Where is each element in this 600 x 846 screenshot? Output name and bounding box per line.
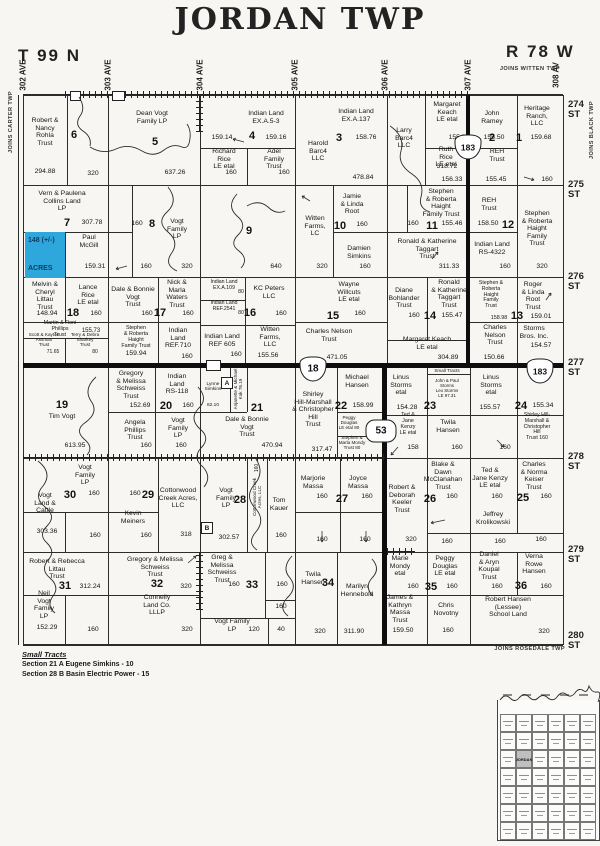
parcel-label: 160 — [89, 532, 100, 540]
highway-shield-18: 18 — [300, 357, 327, 382]
parcel-label: 159.16 — [266, 134, 287, 142]
street-label: 276 ST — [568, 272, 584, 292]
parcel-label: 160 — [182, 402, 193, 410]
parcel-label: Stephen & Roberta Haight Family Trust — [121, 325, 150, 349]
parcel-label: Cottonwood Creek Acres, LLC — [252, 478, 262, 516]
parcel-label: 80 — [92, 350, 98, 356]
inset-township-cell — [516, 732, 532, 750]
section-number: 35 — [425, 582, 437, 593]
parcel-label: Melvin & Cheryl Littau Trust — [32, 281, 58, 311]
parcel-label: 160 — [491, 493, 502, 501]
parcel-label: 154.28 — [397, 404, 418, 412]
parcel-label: 320 — [405, 536, 416, 544]
parcel-line — [245, 277, 246, 366]
parcel-label: Terry & Debra Sharkey Trust — [71, 332, 99, 347]
avenue-label: 304 AVE — [196, 59, 205, 90]
pointer-arrow — [546, 293, 551, 300]
street-label: 277 ST — [568, 358, 584, 378]
parcel-label: 160 — [407, 220, 418, 228]
parcel-label: 320 — [316, 263, 327, 271]
road-structure-marker — [112, 91, 125, 101]
parcel-label: Wayne Willcuts LE etal — [337, 281, 360, 304]
parcel-line — [268, 618, 269, 645]
parcel-label: 307.78 — [82, 219, 103, 227]
parcel-label: 303.36 — [37, 528, 58, 536]
inset-township-cell — [532, 732, 548, 750]
parcel-label: Stephen & Marla Mondy Trust 80 — [339, 435, 366, 450]
parcel-label: Robert & Deborah Keeler Trust — [389, 484, 416, 514]
parcel-line — [427, 374, 470, 375]
parcel-label: 148.94 — [37, 310, 58, 318]
inset-range-tick — [541, 694, 550, 696]
parcel-line — [427, 552, 428, 645]
parcel-line — [265, 600, 295, 601]
highlight-acres-text: ACRES — [28, 265, 63, 272]
parcel-label: 160 — [275, 310, 286, 318]
parcel-label: Joyce Massa — [348, 475, 368, 490]
parcel-label: Indian Land REF.710 — [165, 327, 191, 350]
parcel-line — [337, 552, 338, 645]
parcel-line — [23, 95, 24, 645]
parcel-line — [295, 322, 387, 323]
inset-township-cell — [564, 714, 580, 732]
inset-township-cell — [532, 822, 548, 840]
parcel-label: REH Trust — [481, 197, 496, 212]
parcel-label: Peggy Douglas LE etal — [433, 555, 458, 578]
inset-range-tick — [503, 694, 512, 696]
parcel-label: 320 — [181, 263, 192, 271]
parcel-label: 150.66 — [484, 354, 505, 362]
inset-township-cell — [516, 768, 532, 786]
parcel-line — [337, 412, 387, 413]
inset-township-cell — [532, 750, 548, 768]
parcel-label: Charles & Norma Keiser Trust — [521, 461, 548, 491]
creek-line — [90, 124, 190, 154]
parcel-label: 160 — [316, 536, 327, 544]
parcel-label: Vogt Family LP — [75, 464, 95, 487]
parcel-label: 160 — [230, 351, 241, 359]
section-number: 25 — [517, 493, 529, 504]
hatched-road — [196, 552, 203, 610]
parcel-label: Harold Barc4 LLC — [308, 140, 328, 163]
parcel-label: 158.76 — [356, 134, 377, 142]
joins-rosedale-label: JOINS ROSEDALE TWP — [455, 646, 565, 652]
parcel-label: Roger & Linda Root Trust — [521, 281, 544, 311]
section-number: 15 — [327, 311, 339, 322]
parcel-line — [108, 95, 109, 645]
parcel-label: 155.57 — [480, 404, 501, 412]
inset-township-cell — [564, 822, 580, 840]
inset-township-cell — [580, 714, 596, 732]
parcel-line — [65, 232, 66, 277]
inset-township-cell — [500, 822, 516, 840]
parcel-label: Dale & Bonnie Vogt Trust — [225, 416, 268, 439]
parcel-label: Indian Land EX.A.109 — [210, 280, 237, 292]
highway-shield-183: 183 — [455, 135, 482, 160]
parcel-label: 160 — [225, 169, 236, 177]
hatched-road — [23, 454, 385, 461]
parcel-label: Vogt Family LP — [214, 618, 250, 633]
parcel-label: Ronald & Katherine Taggart Trust — [398, 238, 457, 261]
parcel-label: Linus Storms etal — [480, 374, 502, 397]
parcel-label: 311.33 — [439, 263, 459, 271]
parcel-label: 160 — [494, 538, 505, 546]
section-number: 21 — [251, 403, 263, 414]
parcel-line — [333, 232, 470, 233]
parcel-label: 155.56 — [258, 352, 279, 360]
parcel-label: 160 — [446, 493, 457, 501]
parcel-label: 317.47 — [312, 446, 333, 454]
legend-entry: Section 21 A Eugene Simkins - 10 — [22, 660, 149, 669]
parcel-label: Charles Nelson Trust — [483, 324, 506, 347]
parcel-label: 160 — [129, 490, 140, 498]
section-number: 23 — [424, 401, 436, 412]
inset-township-cell — [564, 786, 580, 804]
parcel-line — [132, 185, 133, 277]
inset-township-cell — [548, 750, 564, 768]
parcel-label: Nick & Marla Waters Trust — [166, 279, 187, 309]
parcel-label: Jamie & Linda Root — [340, 193, 363, 216]
parcel-label: 158 — [407, 444, 418, 452]
parcel-label: Neil Vogt Family LP — [34, 590, 54, 620]
pointer-arrow — [116, 266, 127, 270]
parcel-label: Lynne Simkins — [205, 382, 222, 393]
parcel-label: 160 — [131, 220, 142, 228]
section-number: 24 — [515, 401, 527, 412]
creek-line — [232, 194, 245, 268]
parcel-label: 152.69 — [130, 402, 151, 410]
parcel-label: Gregory & Melissa Schweiss Trust — [116, 370, 145, 400]
section-number: 18 — [67, 308, 79, 319]
inset-township-cell — [516, 804, 532, 822]
parcel-label: 158.99 — [353, 402, 374, 410]
parcel-line — [23, 185, 563, 186]
parcel-line — [65, 277, 66, 322]
section-number: 22 — [335, 401, 347, 412]
parcel-label: 160 — [275, 603, 286, 611]
parcel-line — [200, 325, 295, 326]
section-number: 13 — [511, 311, 523, 322]
inset-township-cell — [548, 822, 564, 840]
inset-township-cell — [548, 804, 564, 822]
parcel-line — [158, 277, 159, 366]
parcel-label: 159.14 — [212, 134, 233, 142]
parcel-label: 160 — [276, 581, 287, 589]
parcel-label: 640 — [270, 263, 281, 271]
parcel-label: 160 — [356, 221, 367, 229]
parcel-label: 155.45 — [486, 176, 507, 184]
parcel-label: 320 — [180, 583, 191, 591]
parcel-label: 160 — [499, 444, 510, 452]
parcel-label: KC Peters LLC — [254, 285, 285, 300]
parcel-label: 160 — [87, 626, 98, 634]
avenue-label: 308 AV — [552, 62, 561, 88]
section-number: 28 — [234, 495, 246, 506]
section-number: 17 — [154, 308, 166, 319]
section-number: 2 — [489, 133, 495, 144]
parcel-label: 311.90 — [344, 628, 364, 636]
parcel-line — [427, 533, 563, 534]
parcel-label: 159.01 — [531, 313, 552, 321]
parcel-line — [65, 595, 66, 645]
parcel-label: Indian Land EX.A.5-3 — [248, 110, 284, 125]
parcel-label: Ted & Jane Kenzy LE etal — [400, 412, 417, 436]
parcel-label: 155.47 — [442, 312, 463, 320]
inset-township-cell — [500, 768, 516, 786]
parcel-line — [427, 277, 428, 340]
parcel-label: 312.24 — [80, 583, 101, 591]
parcel-label: Margaret Keach LE etal — [403, 336, 451, 351]
parcel-line — [200, 412, 247, 413]
joins-carter-label: JOINS CARTER TWP — [8, 91, 14, 153]
parcel-label: Indian Land REF.2541 — [210, 301, 237, 313]
parcel-line — [230, 366, 231, 412]
jordan-township-plat-map: JORDAN TWP T 99 N R 78 W JOINS WITTEN TW… — [0, 0, 600, 846]
parcel-label: 160 — [408, 312, 419, 320]
inset-township-cell — [580, 786, 596, 804]
section-number: 14 — [424, 311, 436, 322]
parcel-label: Indian Land RS-118 — [166, 373, 189, 396]
parcel-label: Shirley Hill- Marshall & Christopher Hil… — [524, 413, 551, 442]
parcel-label: 160 — [182, 310, 193, 318]
pointer-arrow — [233, 138, 244, 142]
section-number: 20 — [160, 401, 172, 412]
map-title: JORDAN TWP — [0, 2, 600, 37]
parcel-line — [517, 415, 518, 458]
street-label: 278 ST — [568, 452, 584, 472]
parcel-label: 158.98 — [491, 315, 508, 321]
section-number: 8 — [149, 219, 155, 230]
pointer-arrow — [188, 556, 196, 563]
parcel-label: 159.50 — [393, 627, 414, 635]
inset-range-tick — [579, 694, 588, 696]
inset-township-cell — [564, 768, 580, 786]
parcel-label: Heritage Ranch, LLC — [524, 105, 550, 128]
section-number: 33 — [246, 580, 258, 591]
highlighted-parcel-148-acres: 148 (+/-) ACRES — [25, 232, 65, 278]
parcel-label: John & Paul Storms Leo Storms LE 97.31 — [435, 379, 459, 399]
inset-range-tick — [522, 694, 531, 696]
parcel-label: Indian Land EX.A.137 — [338, 108, 374, 123]
parcel-line — [470, 232, 517, 233]
plat-map-page: JORDAN TWP T 99 N R 78 W JOINS WITTEN TW… — [0, 0, 600, 846]
section-number: 4 — [249, 131, 255, 142]
parcel-label: 80 — [238, 290, 244, 296]
inset-township-cell — [516, 822, 532, 840]
parcel-label: John Ramey — [481, 110, 503, 125]
parcel-label: 155.46 — [442, 220, 463, 228]
parcel-label: Michael Hansen — [345, 374, 368, 389]
section-number: 11 — [426, 221, 438, 232]
inset-township-cell — [580, 768, 596, 786]
road-structure-marker — [70, 91, 81, 101]
parcel-line — [295, 95, 296, 645]
avenue-label: 303 AVE — [104, 59, 113, 90]
parcel-label: Indian Land REF 605 — [204, 333, 240, 348]
section-number: 30 — [64, 490, 76, 501]
section-number: 26 — [424, 494, 436, 505]
street-label: 279 ST — [568, 545, 584, 565]
inset-township-cell — [564, 804, 580, 822]
parcel-label: Ronald & Katherine Taggart Trust — [431, 279, 467, 309]
parcel-label: 160 — [451, 444, 462, 452]
avenue-label: 307 AVE — [464, 59, 473, 90]
parcel-label: 155.34 — [533, 402, 554, 410]
avenue-label: 302 AVE — [19, 59, 28, 90]
joins-witten-label: JOINS WITTEN TWP — [470, 66, 590, 72]
parcel-label: 160 — [491, 583, 502, 591]
parcel-label: Vogt Family LP — [167, 218, 187, 241]
inset-township-cell — [564, 750, 580, 768]
section-number: 16 — [244, 308, 256, 319]
parcel-line — [67, 95, 68, 185]
parcel-label: 160 — [361, 493, 372, 501]
street-label: 274 ST — [568, 100, 584, 120]
parcel-label: 320 — [314, 628, 325, 636]
parcel-label: 471.05 — [327, 354, 348, 362]
parcel-line — [108, 412, 200, 413]
parcel-label: 320 — [536, 263, 547, 271]
section-number: 19 — [56, 400, 68, 411]
parcel-label: Marilyn Hennebold — [341, 583, 374, 598]
section-number: 34 — [322, 578, 334, 589]
parcel-label: 160 — [175, 442, 186, 450]
parcel-label: Robert & Rebecca Littau Trust — [29, 558, 85, 581]
inset-township-cell — [580, 750, 596, 768]
inset-township-cell — [532, 768, 548, 786]
parcel-label: 156.33 — [442, 176, 463, 184]
parcel-label: 40 — [277, 626, 285, 634]
inset-township-cell — [548, 732, 564, 750]
parcel-label: Lance Rice LE etal — [77, 284, 98, 307]
parcel-label: 160 — [535, 536, 546, 544]
parcel-label: Stephen & Roberta Haight Family Trust — [422, 188, 459, 218]
parcel-label: REH Trust — [489, 148, 504, 163]
pointer-arrow — [302, 196, 310, 201]
parcel-label: 320 — [181, 626, 192, 634]
parcel-label: 160 — [90, 310, 101, 318]
parcel-label: 160 — [255, 464, 261, 472]
parcel-label: Cottonwood Creek Acres, LLC — [159, 487, 198, 510]
parcel-label: Angela Phillips Trust — [124, 419, 146, 442]
inset-township-cell — [500, 750, 516, 768]
section-number: 6 — [71, 130, 77, 141]
parcel-label: Gregory & Melissa Schweiss Trust — [127, 556, 183, 579]
parcel-line — [387, 95, 388, 366]
parcel-line — [470, 366, 471, 645]
parcel-line — [18, 95, 19, 645]
parcel-label: Ruth Rice LE etal — [435, 146, 456, 169]
parcel-line — [23, 277, 563, 278]
parcel-label: Adel Family Trust — [264, 148, 284, 171]
parcel-line — [425, 95, 426, 185]
parcel-line — [65, 338, 66, 366]
parcel-label: 160 — [359, 536, 370, 544]
inset-township-cell — [548, 768, 564, 786]
parcel-label: Connelly Land Co. LLLP — [143, 594, 171, 617]
section-number: 7 — [64, 218, 70, 229]
parcel-label: 160 — [88, 490, 99, 498]
legend-entry: Section 28 B Basin Electric Power - 15 — [22, 670, 149, 679]
parcel-line — [340, 458, 341, 552]
parcel-label: Verna Rowe Hansen — [522, 553, 545, 576]
parcel-label: Ted & Jane Kenzy LE etal — [472, 467, 508, 490]
parcel-label: Scott & Kayton Assman Trust — [29, 332, 59, 347]
inset-range-tick — [560, 694, 569, 696]
parcel-line — [247, 148, 248, 185]
parcel-label: Marie Mondy etal — [390, 555, 410, 578]
parcel-label: 159.31 — [85, 263, 106, 271]
parcel-label: 613.95 — [65, 442, 86, 450]
parcel-label: Larry Barc4 LLC — [395, 127, 413, 150]
small-tract-marker-A: A — [221, 377, 233, 389]
parcel-label: 160 — [354, 310, 365, 318]
parcel-label: 320 — [87, 170, 98, 178]
parcel-label: Tim Vogt — [49, 413, 76, 421]
parcel-label: Diane Bohlander Trust — [389, 287, 420, 310]
parcel-label: 160 — [141, 310, 152, 318]
parcel-label: 152.29 — [37, 624, 58, 632]
inset-township-cell — [548, 786, 564, 804]
parcel-label: Robert & Nancy Rohla Trust — [32, 117, 59, 147]
small-tract-marker-B: B — [201, 522, 213, 534]
parcel-label: Blake & Dawn McClanahan Trust — [424, 461, 462, 491]
inset-jordan-cell: JORDAN — [516, 750, 532, 768]
parcel-label: 160 — [359, 263, 370, 271]
joins-black-label: JOINS BLACK TWP — [589, 101, 595, 159]
parcel-line — [265, 552, 266, 618]
parcel-label: Charles Nelson Trust — [306, 328, 352, 343]
parcel-line — [517, 185, 518, 277]
parcel-label: 160 — [442, 627, 453, 635]
parcel-label: Shirley Hill-Marshall & Christopher Hill… — [292, 391, 334, 429]
parcel-label: 160 — [140, 263, 151, 271]
parcel-label: 320 — [538, 628, 549, 636]
parcel-label: 71.65 — [47, 350, 60, 356]
parcel-label: Robert Hansen (Lessee) School Land — [485, 596, 531, 619]
parcel-label: 294.88 — [35, 168, 56, 176]
parcel-label: 160 — [275, 532, 286, 540]
parcel-line — [295, 512, 387, 513]
parcel-line — [23, 644, 563, 646]
parcel-label: 160 — [541, 176, 552, 184]
parcel-label: 304.89 — [438, 354, 459, 362]
highway-shield-53: 53 — [366, 420, 397, 443]
parcel-label: 160 — [316, 493, 327, 501]
highway-line — [23, 363, 563, 368]
parcel-label: Paul McGill — [80, 234, 99, 249]
creek-line — [247, 203, 285, 213]
inset-township-cell — [564, 732, 580, 750]
parcel-label: Stephen & Roberta Haight Family Trust — [479, 281, 503, 310]
parcel-label: 160 — [446, 583, 457, 591]
parcel-label: Vern & Paulena Collins Land LP — [38, 190, 85, 213]
parcel-label: Small Tracts — [434, 368, 459, 373]
parcel-label: 159.94 — [126, 350, 147, 358]
inset-township-cell — [500, 804, 516, 822]
street-label: 280 ST — [568, 631, 584, 651]
parcel-line — [247, 366, 248, 412]
legend-heading: Small Tracts — [22, 650, 149, 660]
inset-township-cell — [516, 786, 532, 804]
parcel-line — [427, 415, 428, 458]
parcel-label: 154.57 — [531, 342, 552, 350]
parcel-label: 160 — [181, 353, 192, 361]
highway-shield-183: 183 — [527, 359, 554, 384]
inset-township-cell — [532, 714, 548, 732]
parcel-label: 158.50 — [478, 220, 499, 228]
highlight-acreage-text: 148 (+/-) — [28, 237, 63, 244]
